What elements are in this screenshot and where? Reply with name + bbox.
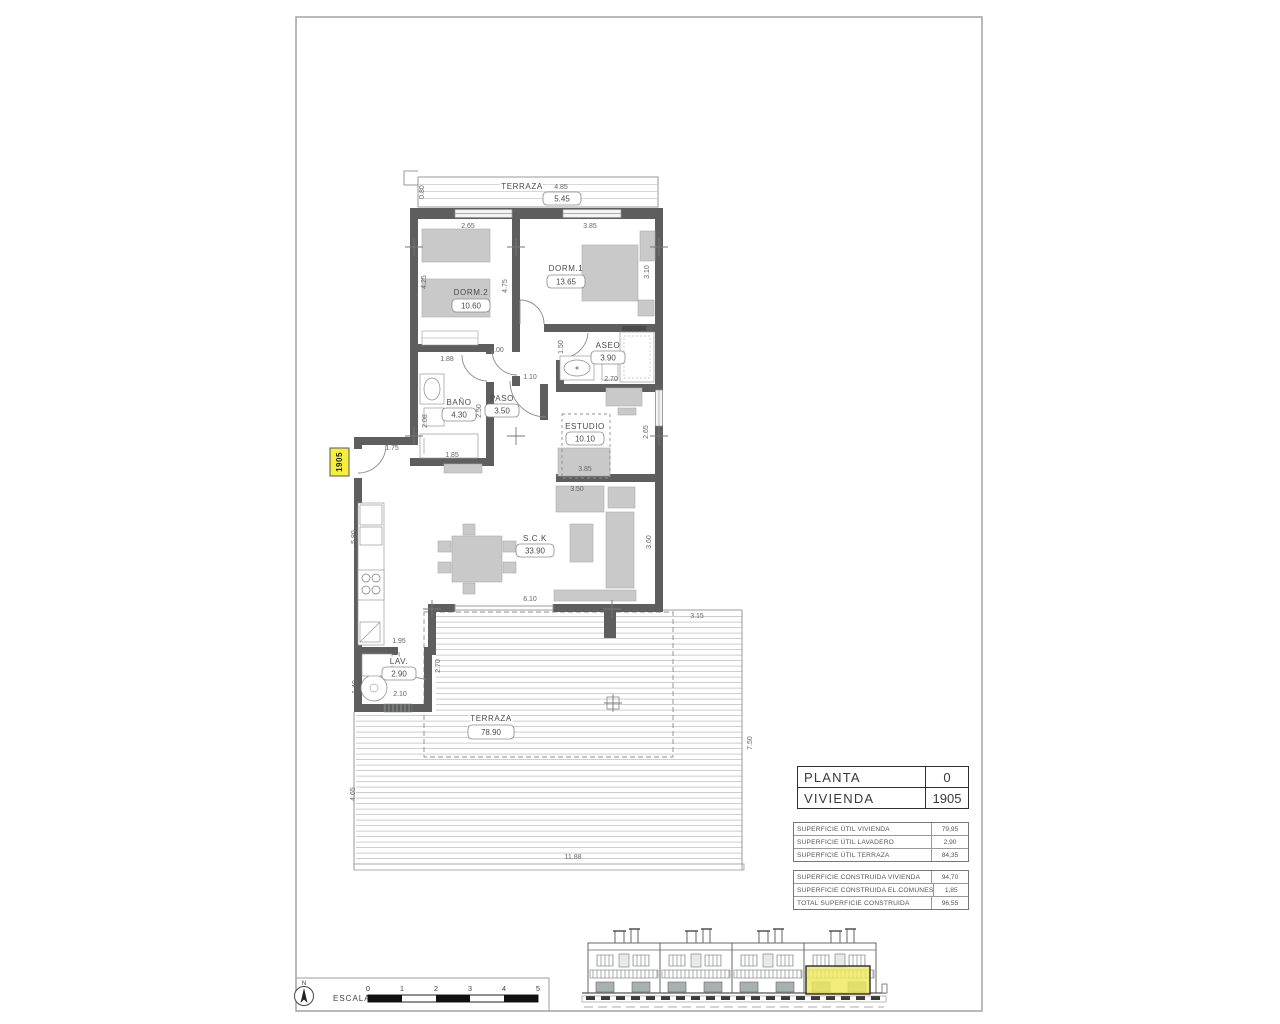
elevation-ground-strip xyxy=(582,996,886,1002)
dimension-label: 1.50 xyxy=(558,340,565,354)
table-row: SUPERFICIE ÚTIL LAVADERO 2,90 xyxy=(794,835,968,848)
dimension-label: 1.00 xyxy=(490,347,504,354)
title-block-util: SUPERFICIE ÚTIL VIVIENDA 79,95 SUPERFICI… xyxy=(793,822,969,862)
dimension-label: 4.85 xyxy=(554,184,568,191)
dimension-label: 1.95 xyxy=(392,638,406,645)
dimension-label: 3.85 xyxy=(583,223,597,230)
construida-value-2: 96,55 xyxy=(931,897,968,909)
title-block-main: PLANTA 0 VIVIENDA 1905 xyxy=(797,766,969,809)
dimension-label: 1.85 xyxy=(445,452,459,459)
title-block-construida: SUPERFICIE CONSTRUIDA VIVIENDA 94,70 SUP… xyxy=(793,870,969,910)
dimension-label: 1.10 xyxy=(523,374,537,381)
coffee-table xyxy=(570,524,593,562)
room-area-paso: 3.50 xyxy=(494,407,510,416)
dining-table xyxy=(452,536,502,582)
room-label-dorm2: DORM.2 xyxy=(454,288,489,297)
planta-row: PLANTA 0 xyxy=(798,767,968,787)
table-row: SUPERFICIE CONSTRUIDA EL.COMUNES 1,85 xyxy=(794,883,968,896)
util-value-2: 84,35 xyxy=(931,849,968,861)
dimension-label: 2.70 xyxy=(604,376,618,383)
util-label-1: SUPERFICIE ÚTIL LAVADERO xyxy=(794,839,931,846)
room-label-terraza-top: TERRAZA xyxy=(501,182,543,191)
room-label-bano: BAÑO xyxy=(446,398,471,407)
scale-tick: 5 xyxy=(536,984,540,993)
room-label-paso: PASO xyxy=(490,394,514,403)
plan-sheet: 1905 TERRAZA 5.45 DORM.2 10.60 DORM.1 13… xyxy=(0,0,1280,1024)
hall-cabinet xyxy=(444,464,482,473)
room-label-dorm1: DORM.1 xyxy=(549,264,584,273)
dimension-label: 2.10 xyxy=(393,691,407,698)
room-area-estudio: 10.10 xyxy=(575,435,596,444)
bano-basin xyxy=(424,378,440,400)
scale-tick: 4 xyxy=(502,984,506,993)
dimension-label: 5.80 xyxy=(351,530,358,544)
chair-estudio xyxy=(618,408,636,415)
north-letter: N xyxy=(302,981,306,987)
dimension-label: 2.50 xyxy=(476,404,483,418)
dimension-label: 0.80 xyxy=(419,185,426,199)
dimension-label: 3.50 xyxy=(570,486,584,493)
bed-dorm2-1 xyxy=(422,229,490,262)
room-area-bano: 4.30 xyxy=(451,411,467,420)
dimension-label: 3.15 xyxy=(690,613,704,620)
scale-tick: 3 xyxy=(468,984,472,993)
construida-label-1: SUPERFICIE CONSTRUIDA EL.COMUNES xyxy=(794,887,933,894)
util-value-0: 79,95 xyxy=(931,823,968,835)
highlighted-unit xyxy=(806,966,870,994)
room-area-aseo: 3.90 xyxy=(600,354,616,363)
dimension-label: 3.10 xyxy=(644,265,651,279)
construida-label-0: SUPERFICIE CONSTRUIDA VIVIENDA xyxy=(794,874,931,881)
nightstand-dorm1-2 xyxy=(638,300,654,316)
floor-plan-drawing: 1905 TERRAZA 5.45 DORM.2 10.60 DORM.1 13… xyxy=(0,0,1280,1024)
dimension-label: 4.65 xyxy=(350,787,357,801)
table-row: SUPERFICIE ÚTIL VIVIENDA 79,95 xyxy=(794,823,968,835)
kitchen-hob xyxy=(358,570,384,600)
dimension-label: 1.75 xyxy=(385,445,399,452)
scale-tick: 2 xyxy=(434,984,438,993)
room-area-terraza-top: 5.45 xyxy=(554,195,570,204)
sideboard xyxy=(554,590,636,601)
room-area-lav: 2.90 xyxy=(391,670,407,679)
dimension-label: 4.25 xyxy=(421,275,428,289)
dimension-label: 2.65 xyxy=(643,425,650,439)
scale-tick: 0 xyxy=(366,984,370,993)
dimension-label: 2.08 xyxy=(422,414,429,428)
lav-vent xyxy=(384,704,412,712)
room-area-dorm2: 10.60 xyxy=(461,302,482,311)
aseo-vent xyxy=(622,326,646,331)
planta-value: 0 xyxy=(925,767,968,787)
vivienda-value: 1905 xyxy=(925,788,968,808)
table-row: TOTAL SUPERFICIE CONSTRUIDA 96,55 xyxy=(794,896,968,909)
dimension-label: 3.60 xyxy=(646,535,653,549)
unit-tag-number: 1905 xyxy=(335,452,344,472)
table-row: SUPERFICIE CONSTRUIDA VIVIENDA 94,70 xyxy=(794,871,968,883)
planta-label: PLANTA xyxy=(798,770,925,785)
room-label-estudio: ESTUDIO xyxy=(565,422,605,431)
sofa-right xyxy=(606,512,634,588)
util-label-2: SUPERFICIE ÚTIL TERRAZA xyxy=(794,852,931,859)
room-label-sck: S.C.K xyxy=(523,534,547,543)
table-row: SUPERFICIE ÚTIL TERRAZA 84,35 xyxy=(794,848,968,861)
util-label-0: SUPERFICIE ÚTIL VIVIENDA xyxy=(794,826,931,833)
construida-label-2: TOTAL SUPERFICIE CONSTRUIDA xyxy=(794,900,931,907)
room-area-sck: 33.90 xyxy=(525,547,546,556)
unit-tag: 1905 xyxy=(330,448,349,476)
dimension-label: 2.65 xyxy=(461,223,475,230)
nightstand-dorm1-1 xyxy=(640,231,655,261)
room-label-lav: LAV. xyxy=(390,657,408,666)
vivienda-row: VIVIENDA 1905 xyxy=(798,787,968,808)
dimension-label: 6.10 xyxy=(523,596,537,603)
util-value-1: 2,90 xyxy=(931,836,968,848)
scale-tick: 1 xyxy=(400,984,404,993)
dimension-label: 2.70 xyxy=(435,659,442,673)
vivienda-label: VIVIENDA xyxy=(798,791,925,806)
armchair xyxy=(608,487,635,508)
room-label-terraza-main: TERRAZA xyxy=(470,714,512,723)
room-area-terraza-main: 78.90 xyxy=(481,728,502,737)
dimension-label: 11.88 xyxy=(565,854,582,861)
terrace-pillar xyxy=(604,612,616,638)
construida-value-0: 94,70 xyxy=(931,871,968,883)
construida-value-1: 1,85 xyxy=(933,884,968,896)
room-area-dorm1: 13.65 xyxy=(556,278,577,287)
dimension-label: 4.75 xyxy=(502,279,509,293)
desk-estudio xyxy=(606,388,642,406)
dimension-label: 7.50 xyxy=(747,736,754,750)
bed-dorm1 xyxy=(582,245,638,301)
dimension-label: 1.40 xyxy=(352,680,359,694)
dimension-label: 1.88 xyxy=(440,356,454,363)
room-label-aseo: ASEO xyxy=(596,341,621,350)
dimension-label: 3.85 xyxy=(578,466,592,473)
